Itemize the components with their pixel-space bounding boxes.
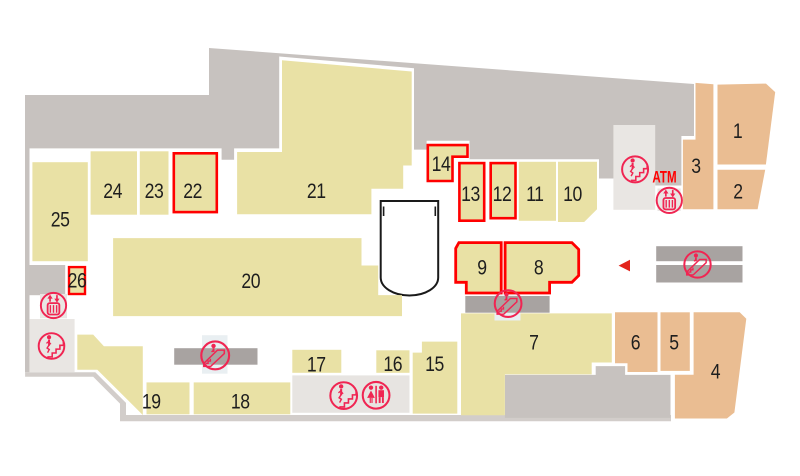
svg-text:12: 12	[493, 183, 512, 207]
svg-text:2: 2	[733, 180, 742, 204]
svg-text:14: 14	[432, 153, 451, 177]
svg-text:6: 6	[631, 331, 640, 355]
svg-text:11: 11	[526, 183, 543, 207]
svg-text:21: 21	[307, 180, 326, 204]
svg-text:20: 20	[241, 270, 260, 294]
svg-text:8: 8	[534, 256, 543, 280]
svg-text:16: 16	[383, 353, 402, 377]
svg-text:10: 10	[563, 183, 582, 207]
svg-text:3: 3	[691, 155, 700, 179]
svg-text:18: 18	[231, 390, 250, 414]
svg-text:24: 24	[103, 180, 122, 204]
svg-text:22: 22	[183, 180, 202, 204]
svg-text:1: 1	[733, 120, 742, 144]
svg-text:5: 5	[669, 331, 678, 355]
svg-text:26: 26	[68, 269, 87, 293]
svg-text:23: 23	[145, 180, 164, 204]
svg-text:19: 19	[142, 390, 161, 414]
svg-text:25: 25	[51, 208, 70, 232]
svg-text:7: 7	[529, 331, 538, 355]
svg-text:13: 13	[461, 183, 480, 207]
svg-text:9: 9	[477, 256, 486, 280]
svg-text:ATM: ATM	[652, 168, 676, 187]
svg-text:15: 15	[425, 353, 444, 377]
svg-text:17: 17	[307, 353, 326, 377]
svg-text:4: 4	[711, 360, 721, 384]
